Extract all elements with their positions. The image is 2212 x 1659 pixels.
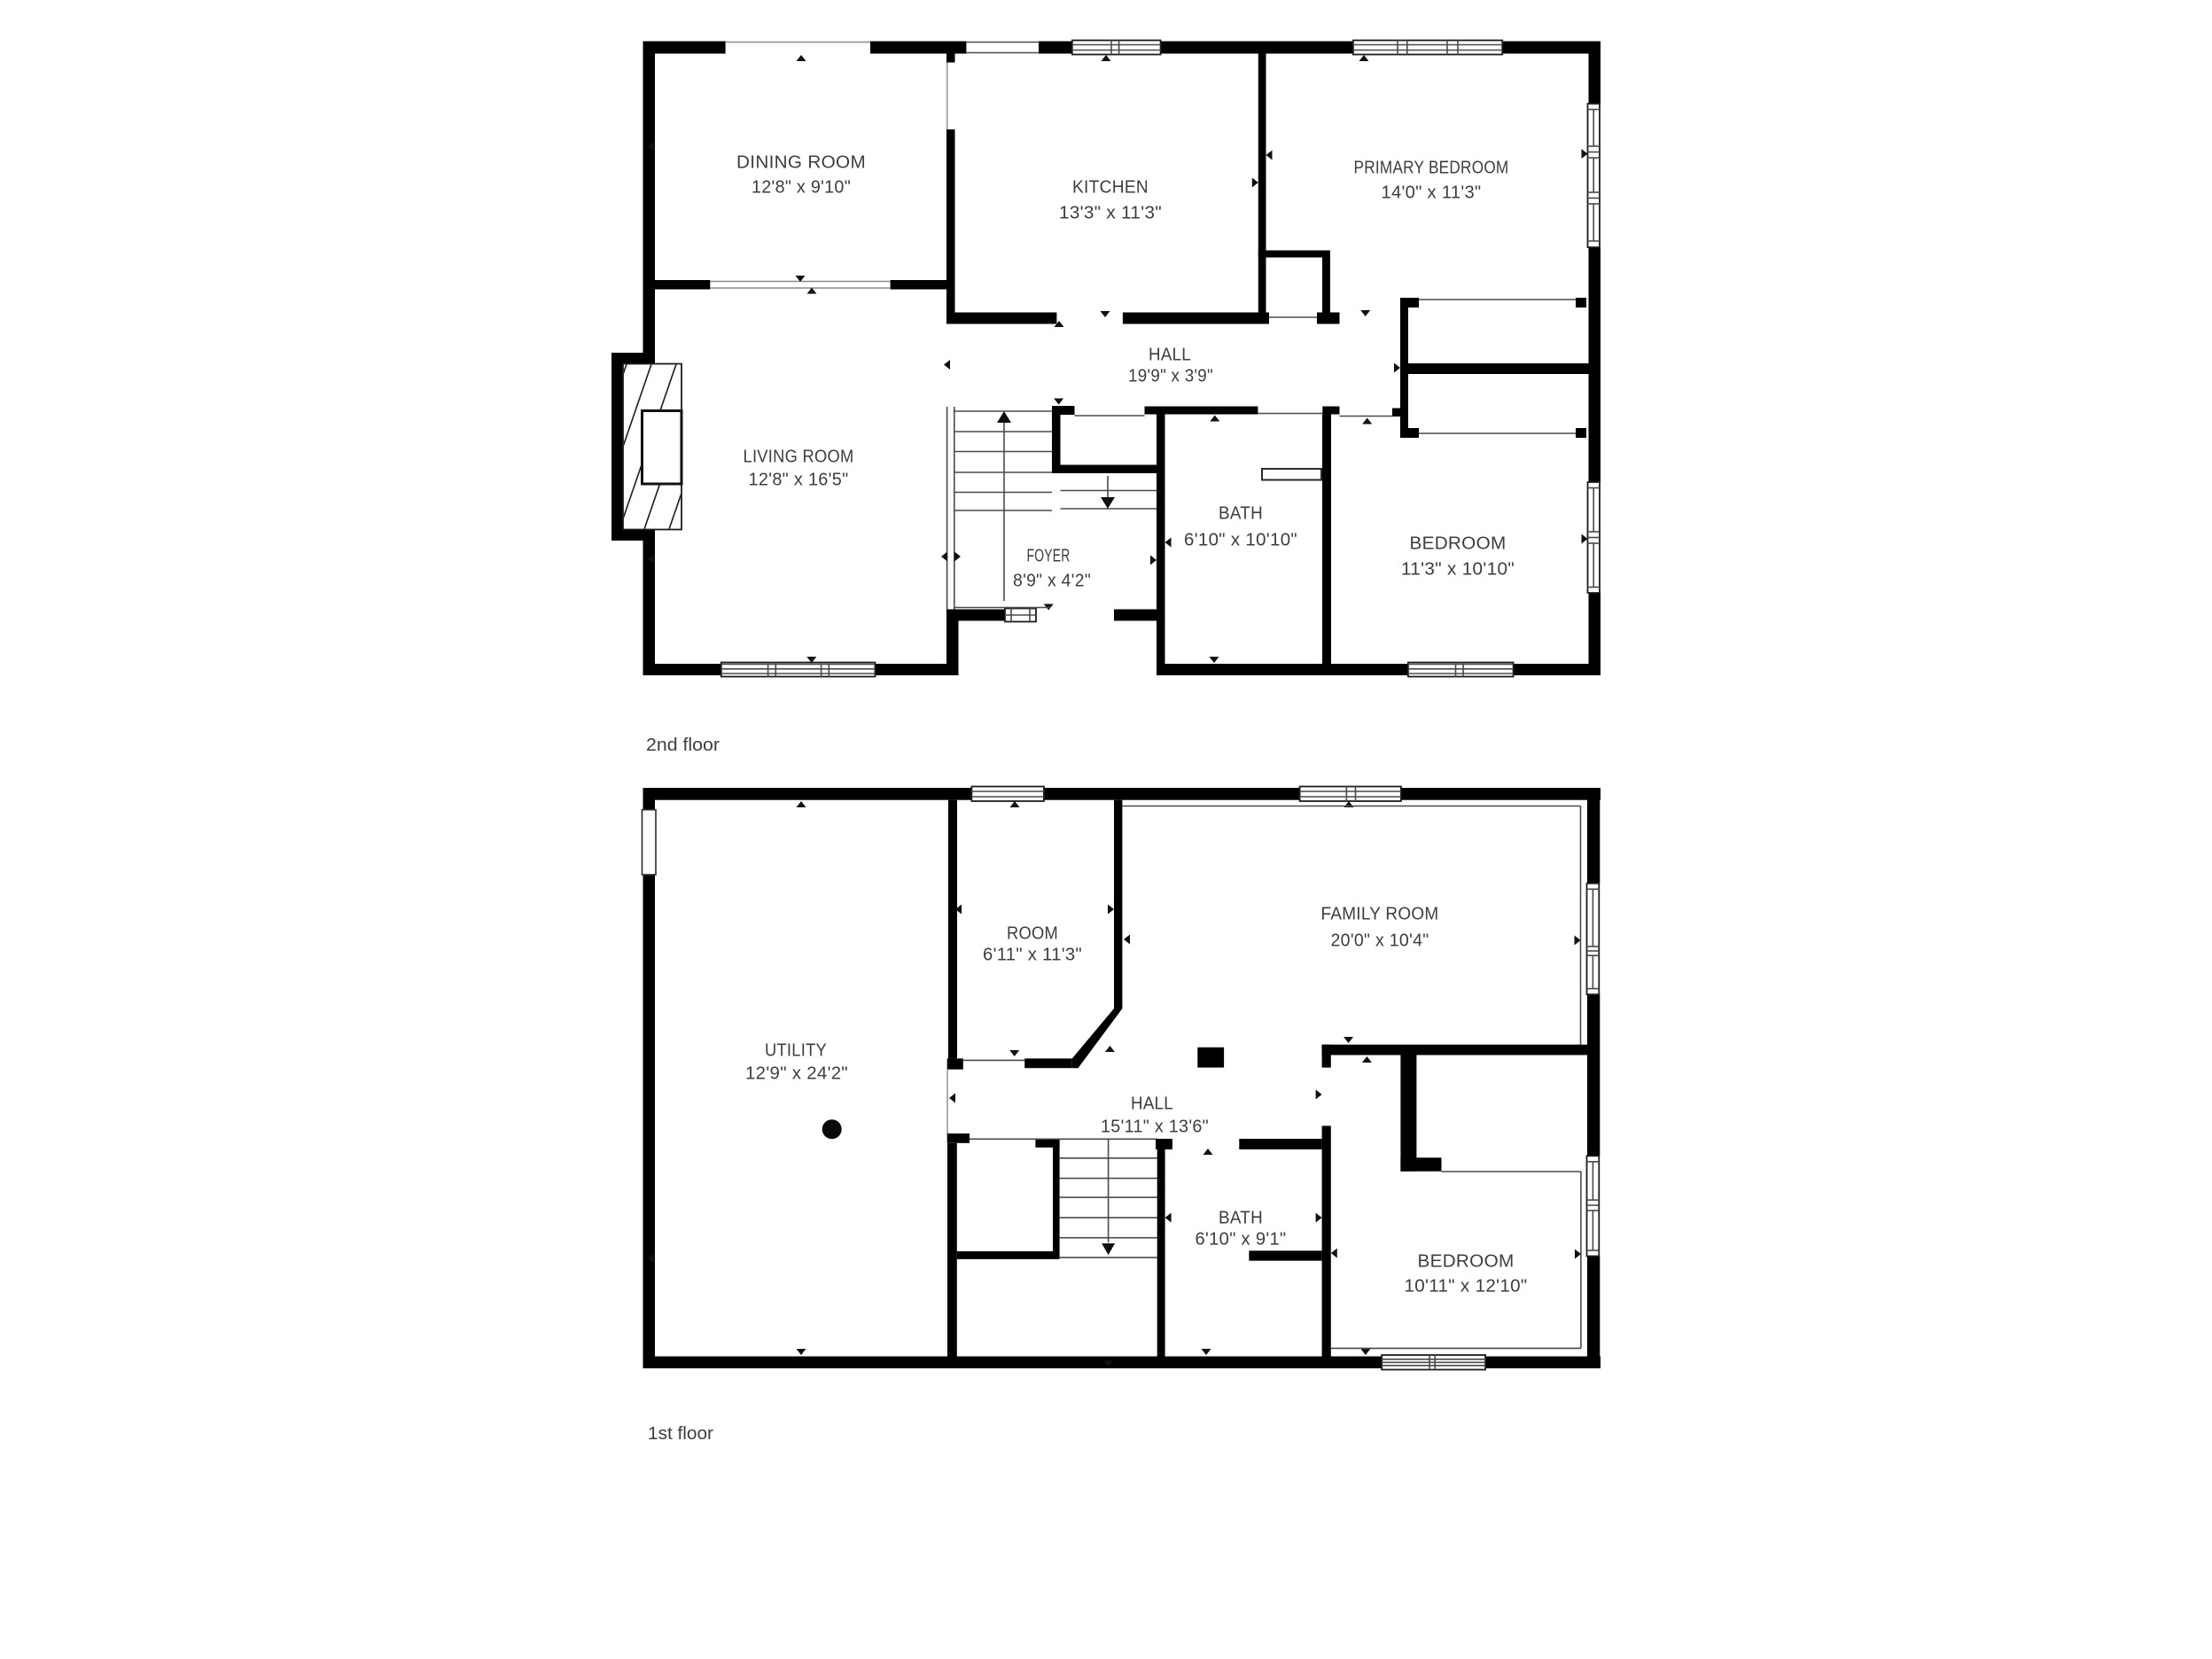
svg-text:FAMILY ROOM: FAMILY ROOM: [1321, 905, 1439, 924]
svg-text:19'9" x 3'9": 19'9" x 3'9": [1128, 367, 1213, 386]
svg-text:ROOM: ROOM: [1007, 924, 1058, 944]
svg-text:BEDROOM: BEDROOM: [1410, 534, 1507, 554]
svg-text:20'0" x 10'4": 20'0" x 10'4": [1331, 931, 1429, 951]
svg-text:14'0" x 11'3": 14'0" x 11'3": [1382, 183, 1482, 203]
svg-text:BEDROOM: BEDROOM: [1418, 1252, 1515, 1272]
svg-text:KITCHEN: KITCHEN: [1072, 178, 1149, 198]
svg-text:BATH: BATH: [1219, 1209, 1263, 1228]
svg-text:LIVING ROOM: LIVING ROOM: [744, 448, 854, 467]
svg-text:12'8" x 9'10": 12'8" x 9'10": [752, 178, 851, 198]
svg-text:FOYER: FOYER: [1027, 547, 1071, 566]
svg-text:6'10" x 9'1": 6'10" x 9'1": [1196, 1230, 1287, 1250]
svg-text:DINING ROOM: DINING ROOM: [736, 153, 866, 173]
svg-text:8'9" x 4'2": 8'9" x 4'2": [1013, 572, 1091, 591]
svg-text:6'10" x 10'10": 6'10" x 10'10": [1184, 531, 1297, 550]
svg-text:1st floor: 1st floor: [648, 1424, 713, 1444]
svg-text:10'11" x 12'10": 10'11" x 12'10": [1405, 1277, 1528, 1297]
svg-text:13'3" x 11'3": 13'3" x 11'3": [1059, 204, 1162, 223]
svg-text:UTILITY: UTILITY: [765, 1041, 827, 1061]
svg-text:HALL: HALL: [1131, 1094, 1173, 1114]
svg-text:6'11" x 11'3": 6'11" x 11'3": [983, 946, 1082, 965]
svg-text:12'8" x 16'5": 12'8" x 16'5": [749, 471, 849, 490]
svg-text:11'3" x 10'10": 11'3" x 10'10": [1401, 560, 1515, 580]
svg-text:2nd floor: 2nd floor: [646, 736, 720, 755]
svg-text:HALL: HALL: [1149, 346, 1191, 365]
svg-text:15'11" x 13'6": 15'11" x 13'6": [1101, 1118, 1209, 1137]
svg-text:BATH: BATH: [1219, 504, 1263, 524]
svg-text:12'9" x 24'2": 12'9" x 24'2": [745, 1064, 848, 1084]
svg-text:PRIMARY BEDROOM: PRIMARY BEDROOM: [1354, 159, 1509, 178]
